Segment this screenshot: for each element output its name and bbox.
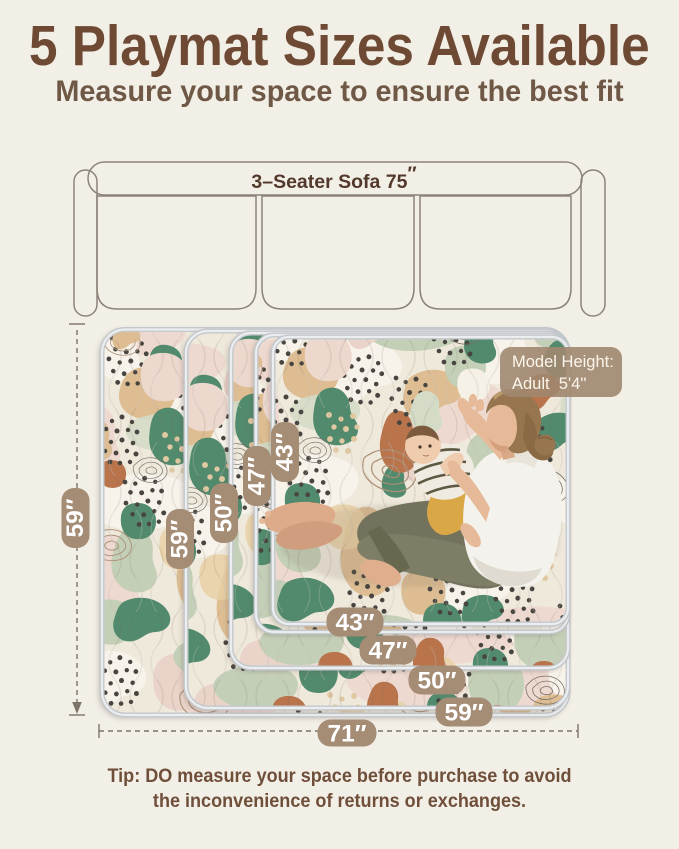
svg-text:47″: 47″ (244, 456, 271, 495)
svg-text:43″: 43″ (272, 432, 299, 471)
svg-text:50″: 50″ (211, 493, 238, 532)
svg-text:47″: 47″ (369, 638, 408, 665)
svg-text:43″: 43″ (336, 610, 375, 637)
svg-text:71″: 71″ (328, 721, 367, 748)
svg-text:3–Seater Sofa 75″: 3–Seater Sofa 75″ (251, 164, 416, 193)
svg-text:59″: 59″ (445, 700, 484, 727)
svg-text:50″: 50″ (418, 668, 457, 695)
svg-text:59″: 59″ (62, 498, 89, 537)
svg-text:59″: 59″ (167, 519, 194, 558)
svg-text:Adult 5'4'': Adult 5'4'' (512, 375, 587, 393)
svg-text:Model Height:: Model Height: (512, 353, 614, 371)
